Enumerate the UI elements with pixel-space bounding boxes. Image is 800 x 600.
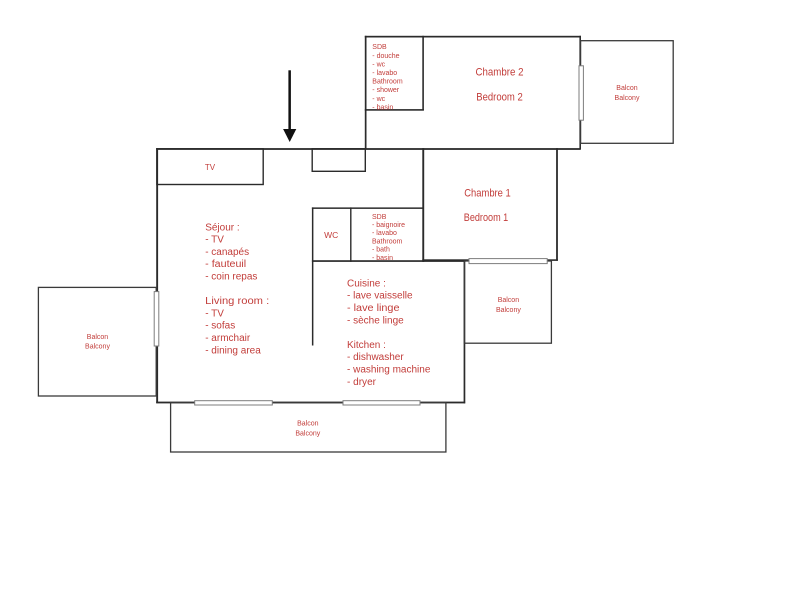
svg-text:Chambre 2: Chambre 2 xyxy=(476,67,524,79)
svg-text:Balcon: Balcon xyxy=(498,297,520,304)
svg-text:WC: WC xyxy=(324,230,338,240)
svg-text:- TV: - TV xyxy=(205,308,224,319)
svg-text:Living room :: Living room : xyxy=(205,296,269,307)
svg-text:- wc: - wc xyxy=(372,96,385,103)
svg-text:- lave vaisselle: - lave vaisselle xyxy=(347,291,413,302)
svg-text:- baignoire: - baignoire xyxy=(372,222,405,229)
svg-text:Kitchen :: Kitchen : xyxy=(347,340,386,351)
svg-text:Balcony: Balcony xyxy=(85,344,110,351)
svg-text:- dining area: - dining area xyxy=(205,345,261,356)
svg-text:- lavabo: - lavabo xyxy=(372,230,397,237)
svg-text:SDB: SDB xyxy=(372,44,387,51)
svg-text:- sofas: - sofas xyxy=(205,321,235,332)
svg-text:Balcon: Balcon xyxy=(87,334,109,341)
svg-text:- bath: - bath xyxy=(372,247,390,254)
svg-text:Séjour :: Séjour : xyxy=(205,222,239,233)
svg-text:- shower: - shower xyxy=(372,87,400,94)
svg-text:- dishwasher: - dishwasher xyxy=(347,352,404,363)
svg-text:TV: TV xyxy=(205,163,216,172)
svg-text:Cuisine :: Cuisine : xyxy=(347,278,386,289)
svg-text:- canapés: - canapés xyxy=(205,247,249,258)
svg-text:Bathroom: Bathroom xyxy=(372,238,403,245)
svg-text:SDB: SDB xyxy=(372,214,387,221)
svg-text:- TV: - TV xyxy=(205,235,224,246)
svg-text:Balcony: Balcony xyxy=(496,307,521,314)
svg-text:Balcon: Balcon xyxy=(616,85,638,92)
svg-text:- lave linge: - lave linge xyxy=(347,303,400,314)
svg-text:- washing machine: - washing machine xyxy=(347,365,431,376)
svg-text:Bedroom 2: Bedroom 2 xyxy=(476,92,523,104)
svg-text:- douche: - douche xyxy=(372,53,399,60)
svg-text:- basin: - basin xyxy=(372,255,393,262)
svg-text:Chambre 1: Chambre 1 xyxy=(464,188,511,200)
svg-text:Bedroom 1: Bedroom 1 xyxy=(464,212,509,224)
svg-text:Balcony: Balcony xyxy=(295,430,320,437)
svg-text:- fauteuil: - fauteuil xyxy=(205,259,246,270)
svg-text:- basin: - basin xyxy=(372,104,393,111)
svg-text:- wc: - wc xyxy=(372,61,385,68)
svg-text:- lavabo: - lavabo xyxy=(372,70,397,77)
svg-text:- armchair: - armchair xyxy=(205,333,251,344)
svg-text:Balcon: Balcon xyxy=(297,421,319,428)
svg-text:- dryer: - dryer xyxy=(347,377,377,388)
svg-text:Bathroom: Bathroom xyxy=(372,79,403,86)
svg-text:- sèche linge: - sèche linge xyxy=(347,315,404,326)
svg-text:Balcony: Balcony xyxy=(615,95,640,102)
svg-text:- coin repas: - coin repas xyxy=(205,272,257,283)
